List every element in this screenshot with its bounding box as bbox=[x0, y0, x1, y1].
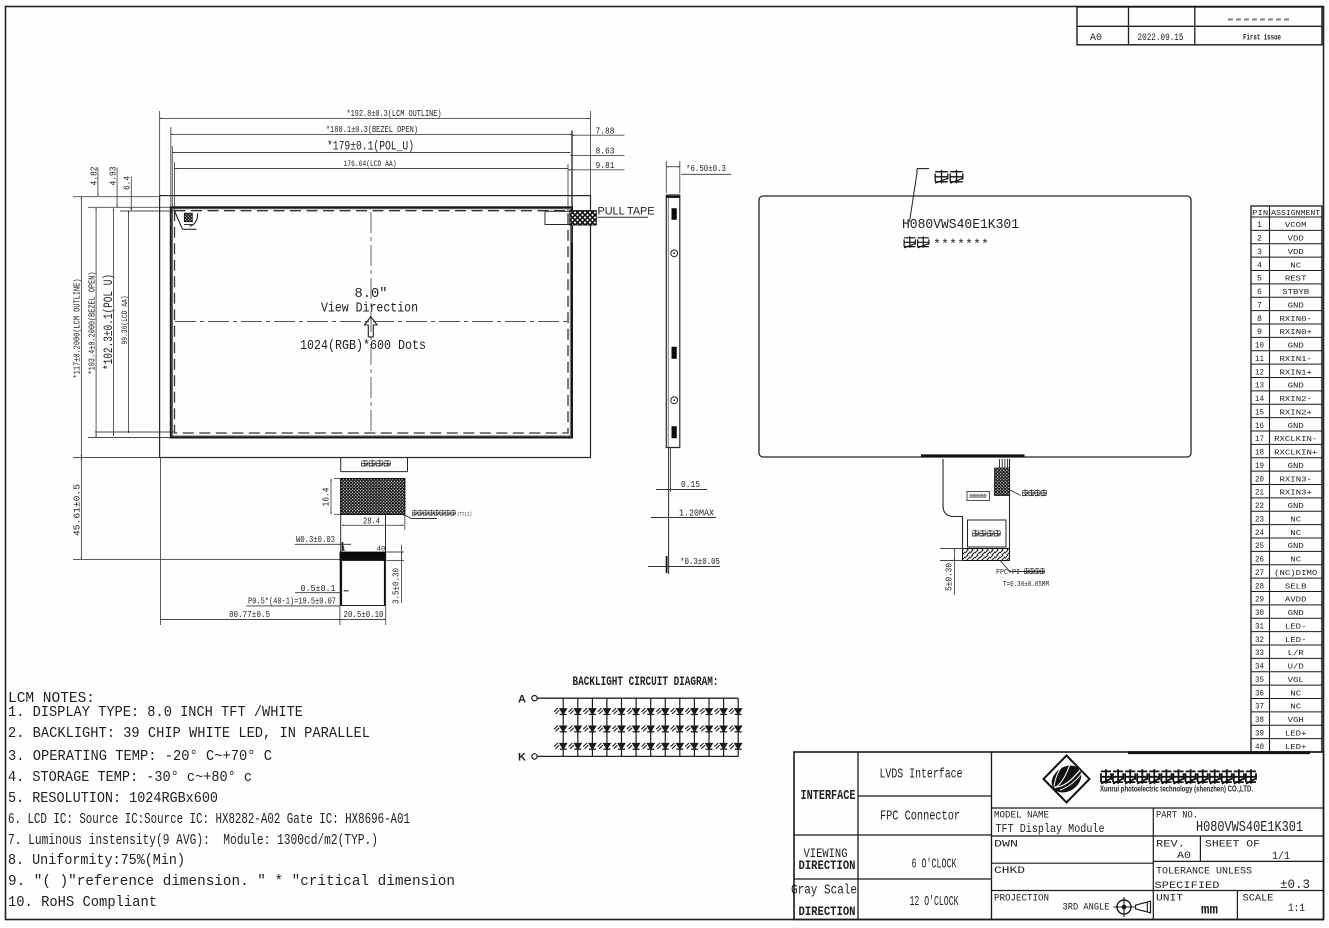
svg-text:80.77±0.5: 80.77±0.5 bbox=[229, 609, 270, 620]
svg-text:REST: REST bbox=[1285, 276, 1307, 284]
svg-text:40: 40 bbox=[377, 546, 386, 553]
svg-text:CHKD: CHKD bbox=[994, 865, 1025, 877]
svg-text:23: 23 bbox=[1255, 514, 1264, 524]
svg-text:2. BACKLIGHT: 39 CHIP WHITE LE: 2. BACKLIGHT: 39 CHIP WHITE LED, IN PARA… bbox=[8, 725, 370, 742]
svg-text:VCOM: VCOM bbox=[1285, 222, 1307, 230]
svg-text:mm: mm bbox=[1201, 903, 1218, 919]
svg-text:View Direction: View Direction bbox=[321, 301, 418, 317]
svg-text:SPECIFIED: SPECIFIED bbox=[1155, 880, 1220, 892]
svg-text:29: 29 bbox=[1255, 595, 1264, 605]
svg-text:AVDD: AVDD bbox=[1285, 597, 1307, 605]
svg-text:31: 31 bbox=[1255, 621, 1264, 631]
svg-text:REV.: REV. bbox=[1156, 839, 1185, 851]
svg-text:NC: NC bbox=[1290, 262, 1301, 270]
svg-text:NC: NC bbox=[1290, 516, 1301, 524]
svg-text:3: 3 bbox=[1257, 247, 1262, 257]
svg-text:UNIT: UNIT bbox=[1156, 893, 1183, 905]
svg-text:T=0.30±0.05MM: T=0.30±0.05MM bbox=[1003, 581, 1049, 589]
svg-text:RXIN1+: RXIN1+ bbox=[1280, 369, 1313, 377]
svg-text:FPC+PI: FPC+PI bbox=[996, 569, 1020, 577]
svg-text:PULL TAPE: PULL TAPE bbox=[598, 206, 655, 218]
svg-text:NC: NC bbox=[1290, 557, 1301, 565]
svg-text:10: 10 bbox=[1255, 341, 1264, 351]
svg-text:RXIN2-: RXIN2- bbox=[1280, 396, 1312, 404]
svg-text:38: 38 bbox=[1255, 715, 1264, 725]
svg-text:3.5±0.30: 3.5±0.30 bbox=[391, 568, 402, 604]
svg-text:NC: NC bbox=[1290, 690, 1301, 698]
svg-text:34: 34 bbox=[1255, 662, 1264, 672]
svg-text:DWN: DWN bbox=[994, 839, 1018, 851]
svg-text:5: 5 bbox=[1257, 274, 1262, 284]
svg-text:27: 27 bbox=[1255, 568, 1264, 578]
svg-text:VGL: VGL bbox=[1288, 677, 1305, 685]
svg-text:1:1: 1:1 bbox=[1288, 903, 1305, 915]
svg-text:First issue: First issue bbox=[1243, 34, 1281, 43]
svg-text:1: 1 bbox=[1257, 220, 1262, 230]
svg-text:15: 15 bbox=[1255, 407, 1264, 417]
svg-text:RXIN3+: RXIN3+ bbox=[1280, 490, 1313, 498]
svg-text:FPC Connector: FPC Connector bbox=[880, 809, 960, 825]
svg-text:7. Luminous instensity(9 AVG):: 7. Luminous instensity(9 AVG): Module: 1… bbox=[8, 832, 378, 849]
svg-text:RXIN1-: RXIN1- bbox=[1280, 356, 1312, 364]
svg-text:MODEL NAME: MODEL NAME bbox=[994, 810, 1049, 822]
svg-text:TFT Display Module: TFT Display Module bbox=[996, 822, 1105, 836]
svg-text:GND: GND bbox=[1288, 302, 1305, 310]
svg-text:1. DISPLAY TYPE: 8.0 INCH TFT: 1. DISPLAY TYPE: 8.0 INCH TFT /WHITE bbox=[8, 704, 303, 721]
svg-text:H080VWS40E1K301: H080VWS40E1K301 bbox=[902, 217, 1019, 233]
svg-text:RXIN3-: RXIN3- bbox=[1280, 476, 1312, 484]
svg-text:6. LCD IC: Source IC:Source IC: 6. LCD IC: Source IC:Source IC: HX8282-A… bbox=[8, 811, 410, 828]
svg-text:20: 20 bbox=[1255, 474, 1264, 484]
svg-text:PART NO.: PART NO. bbox=[1156, 810, 1198, 822]
svg-text:K: K bbox=[518, 752, 526, 764]
svg-text:NC: NC bbox=[1290, 530, 1301, 538]
svg-text:DIRECTION: DIRECTION bbox=[799, 904, 856, 919]
svg-text:A: A bbox=[518, 694, 526, 706]
svg-text:GND: GND bbox=[1288, 543, 1305, 551]
svg-text:0.15: 0.15 bbox=[681, 480, 700, 490]
svg-text:Gray Scale: Gray Scale bbox=[791, 884, 857, 899]
svg-text:8. Uniformity:75%(Min): 8. Uniformity:75%(Min) bbox=[8, 852, 185, 869]
svg-text:9. ″( )″reference dimension. ″: 9. ″( )″reference dimension. ″ * ″critic… bbox=[8, 873, 455, 890]
svg-text:*117±0.2000(LCM OUTLINE): *117±0.2000(LCM OUTLINE) bbox=[72, 279, 83, 379]
svg-text:17: 17 bbox=[1255, 434, 1264, 444]
svg-text:LED-: LED- bbox=[1285, 637, 1307, 645]
svg-text:5. RESOLUTION: 1024RGBx600: 5. RESOLUTION: 1024RGBx600 bbox=[8, 790, 218, 807]
svg-text:12 O'CLOCK: 12 O'CLOCK bbox=[910, 894, 959, 910]
svg-text:RXIN0-: RXIN0- bbox=[1280, 316, 1312, 324]
svg-text:1024(RGB)*600 Dots: 1024(RGB)*600 Dots bbox=[300, 338, 426, 354]
svg-text:Xunrui photoelectric technolog: Xunrui photoelectric technology (shenzhe… bbox=[1100, 785, 1253, 794]
svg-text:RXIN0+: RXIN0+ bbox=[1280, 329, 1313, 337]
svg-text:1: 1 bbox=[341, 546, 346, 553]
svg-text:30: 30 bbox=[1255, 608, 1264, 618]
svg-text:39: 39 bbox=[1255, 728, 1264, 738]
svg-text:11: 11 bbox=[1255, 354, 1264, 364]
svg-text:6: 6 bbox=[1257, 287, 1262, 297]
svg-text:VDD: VDD bbox=[1288, 249, 1305, 257]
svg-text:45.61±0.5: 45.61±0.5 bbox=[72, 484, 83, 536]
svg-text:8.63: 8.63 bbox=[596, 146, 615, 157]
svg-text:LED+: LED+ bbox=[1285, 744, 1307, 752]
svg-text:9.81: 9.81 bbox=[596, 160, 615, 171]
svg-text:SCALE: SCALE bbox=[1243, 893, 1274, 905]
svg-text:*180.1±0.3(BEZEL OPEN): *180.1±0.3(BEZEL OPEN) bbox=[326, 124, 418, 135]
svg-text:20.5±0.10: 20.5±0.10 bbox=[344, 609, 384, 620]
svg-text:DIRECTION: DIRECTION bbox=[799, 858, 856, 873]
svg-text:SHEET OF: SHEET OF bbox=[1205, 839, 1260, 851]
svg-text:VGH: VGH bbox=[1288, 717, 1304, 725]
svg-text:3. OPERATING TEMP: -20° C~+70°: 3. OPERATING TEMP: -20° C~+70° C bbox=[8, 748, 272, 765]
svg-text:*0.3±0.05: *0.3±0.05 bbox=[680, 557, 720, 567]
svg-text:*6.50±0.3: *6.50±0.3 bbox=[686, 163, 726, 174]
svg-text:1/1: 1/1 bbox=[1272, 851, 1290, 863]
svg-text:4. STORAGE TEMP: -30° c~+80° c: 4. STORAGE TEMP: -30° c~+80° c bbox=[8, 769, 252, 786]
svg-text:RXIN2+: RXIN2+ bbox=[1280, 409, 1313, 417]
svg-text:*******: ******* bbox=[933, 237, 989, 252]
svg-text:(T=L1): (T=L1) bbox=[457, 511, 472, 518]
svg-text:(NC)DIMO: (NC)DIMO bbox=[1274, 570, 1318, 578]
svg-text:NC: NC bbox=[1290, 704, 1301, 712]
svg-text:GND: GND bbox=[1288, 463, 1305, 471]
svg-text:3RD ANGLE: 3RD ANGLE bbox=[1063, 903, 1110, 914]
svg-text:RXCLKIN+: RXCLKIN+ bbox=[1274, 450, 1318, 458]
svg-text:GND: GND bbox=[1288, 383, 1305, 391]
svg-text:35: 35 bbox=[1255, 675, 1264, 685]
svg-text:33: 33 bbox=[1255, 648, 1264, 658]
svg-text:176.64(LCD AA): 176.64(LCD AA) bbox=[344, 159, 397, 169]
svg-text:36: 36 bbox=[1255, 688, 1264, 698]
svg-text:25: 25 bbox=[1255, 541, 1264, 551]
svg-text:28: 28 bbox=[1255, 581, 1264, 591]
svg-text:GND: GND bbox=[1288, 423, 1305, 431]
svg-text:GND: GND bbox=[1288, 610, 1305, 618]
svg-text:LED+: LED+ bbox=[1285, 730, 1307, 738]
svg-text:GND: GND bbox=[1288, 343, 1305, 351]
svg-text:7.88: 7.88 bbox=[596, 126, 615, 137]
svg-text:8: 8 bbox=[1257, 314, 1262, 324]
svg-text:A0: A0 bbox=[1090, 33, 1102, 44]
svg-text:L/R: L/R bbox=[1288, 650, 1305, 658]
svg-text:22: 22 bbox=[1255, 501, 1264, 511]
svg-text:VDD: VDD bbox=[1288, 236, 1305, 244]
svg-text:5±0.30: 5±0.30 bbox=[944, 563, 955, 591]
svg-text:21: 21 bbox=[1255, 488, 1264, 498]
svg-text:INTERFACE: INTERFACE bbox=[801, 789, 856, 804]
svg-text:PIN: PIN bbox=[1252, 210, 1268, 218]
svg-text:SELB: SELB bbox=[1285, 583, 1307, 591]
svg-text:37: 37 bbox=[1255, 702, 1264, 712]
svg-text:16.4: 16.4 bbox=[321, 487, 332, 506]
svg-text:1.20MAX: 1.20MAX bbox=[679, 509, 715, 519]
svg-text:2022.09.15: 2022.09.15 bbox=[1138, 33, 1184, 44]
svg-text:14: 14 bbox=[1255, 394, 1264, 404]
svg-text:RXCLKIN-: RXCLKIN- bbox=[1274, 436, 1317, 444]
svg-text:12: 12 bbox=[1255, 367, 1264, 377]
svg-text:±0.3: ±0.3 bbox=[1280, 877, 1310, 892]
svg-text:19: 19 bbox=[1255, 461, 1264, 471]
svg-text:GND: GND bbox=[1288, 503, 1305, 511]
svg-text:28.4: 28.4 bbox=[363, 516, 380, 527]
svg-text:*179±0.1(POL_U): *179±0.1(POL_U) bbox=[327, 140, 414, 154]
svg-text:U/D: U/D bbox=[1288, 664, 1305, 672]
svg-text:ASSIGNMENT: ASSIGNMENT bbox=[1271, 210, 1321, 218]
svg-text:LED-: LED- bbox=[1285, 623, 1307, 631]
svg-text:*192.8±0.3(LCM OUTLINE): *192.8±0.3(LCM OUTLINE) bbox=[347, 108, 442, 119]
svg-text:10. RoHS Compliant: 10. RoHS Compliant bbox=[8, 894, 157, 911]
svg-text:BACKLIGHT CIRCUIT DIAGRAM:: BACKLIGHT CIRCUIT DIAGRAM: bbox=[573, 674, 719, 689]
svg-text:16: 16 bbox=[1255, 421, 1264, 431]
svg-text:PROJECTION: PROJECTION bbox=[994, 893, 1049, 905]
svg-text:H080VWS40E1K301: H080VWS40E1K301 bbox=[1196, 819, 1303, 836]
svg-text:24: 24 bbox=[1255, 528, 1264, 538]
svg-text:TOLERANCE UNLESS: TOLERANCE UNLESS bbox=[1156, 866, 1252, 878]
svg-text:32: 32 bbox=[1255, 635, 1264, 645]
svg-text:2: 2 bbox=[1257, 234, 1262, 244]
svg-text:13: 13 bbox=[1255, 381, 1264, 391]
svg-text:6 O'CLOCK: 6 O'CLOCK bbox=[912, 857, 957, 873]
svg-text:4: 4 bbox=[1257, 260, 1262, 270]
svg-text:LVDS Interface: LVDS Interface bbox=[880, 767, 963, 783]
svg-text:9: 9 bbox=[1257, 327, 1262, 337]
svg-text:W0.3±0.03: W0.3±0.03 bbox=[296, 534, 335, 545]
svg-text:26: 26 bbox=[1255, 555, 1264, 565]
svg-text:P0.5*(40-1)=19.5±0.07: P0.5*(40-1)=19.5±0.07 bbox=[248, 596, 336, 607]
svg-text:18: 18 bbox=[1255, 448, 1264, 458]
svg-text:40: 40 bbox=[1255, 742, 1264, 752]
svg-text:7: 7 bbox=[1257, 300, 1262, 310]
svg-text:STBYB: STBYB bbox=[1282, 289, 1310, 297]
svg-text:A0: A0 bbox=[1177, 850, 1191, 862]
